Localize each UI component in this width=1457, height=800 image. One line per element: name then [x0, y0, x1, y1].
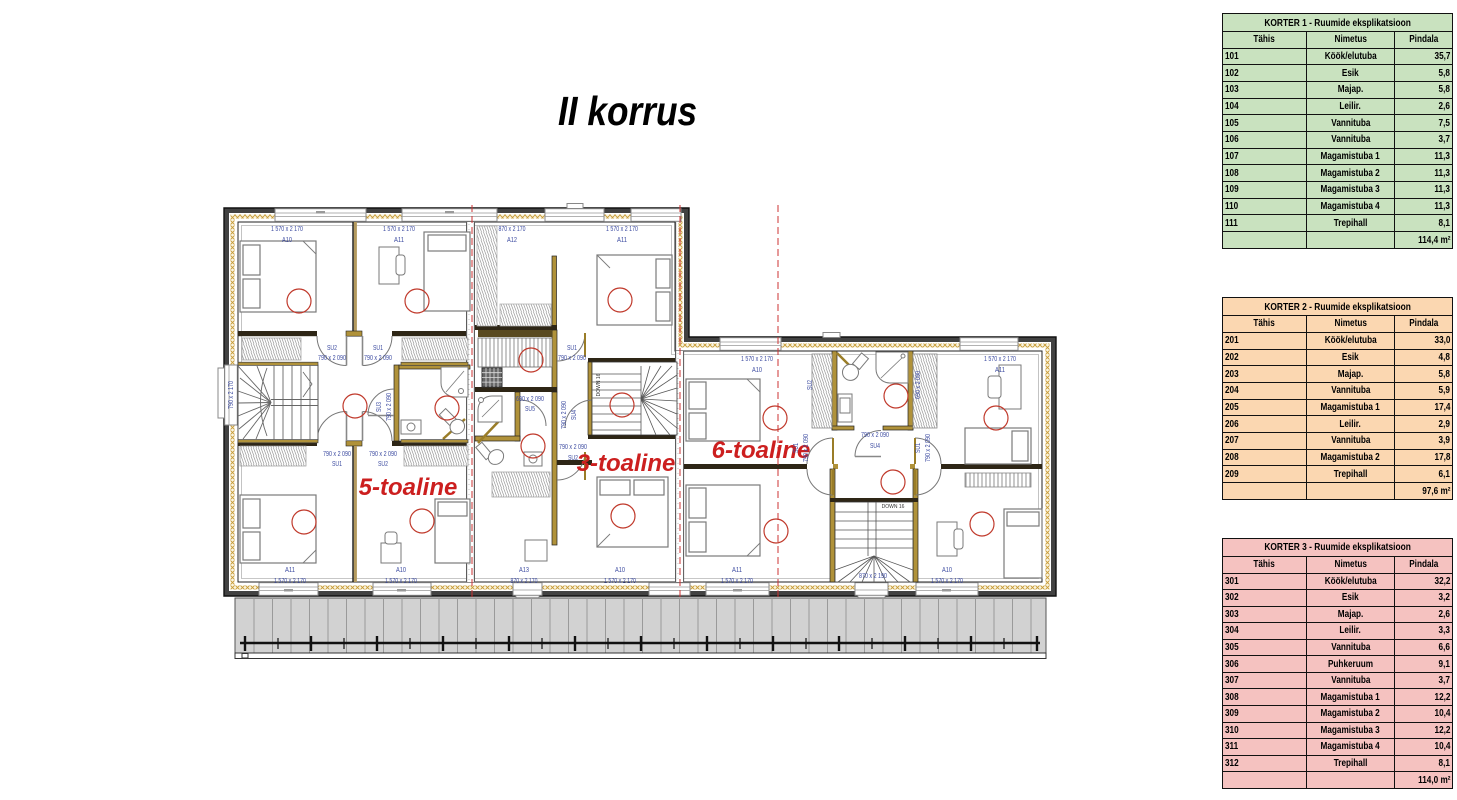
svg-text:790 x 2 170: 790 x 2 170 — [228, 381, 235, 409]
svg-text:790 x 2 090: 790 x 2 090 — [558, 355, 586, 362]
svg-text:SU2: SU2 — [327, 345, 337, 352]
svg-text:1 570 x 2 170: 1 570 x 2 170 — [385, 578, 417, 585]
svg-text:5-toaline: 5-toaline — [359, 474, 458, 501]
svg-text:SU1: SU1 — [373, 345, 383, 352]
svg-text:A11: A11 — [394, 237, 404, 244]
svg-text:A13: A13 — [519, 567, 529, 574]
svg-text:790 x 2 090: 790 x 2 090 — [559, 444, 587, 451]
svg-text:SU1: SU1 — [332, 461, 342, 468]
svg-text:SU1: SU1 — [567, 345, 577, 352]
svg-text:SU2: SU2 — [378, 461, 388, 468]
svg-text:790 x 2 090: 790 x 2 090 — [318, 355, 346, 362]
svg-text:690 x 2 090: 690 x 2 090 — [516, 396, 544, 403]
svg-text:DOWN 16: DOWN 16 — [596, 373, 602, 396]
svg-text:SU4: SU4 — [870, 443, 880, 450]
svg-text:A11: A11 — [285, 567, 295, 574]
svg-text:1 570 x 2 170: 1 570 x 2 170 — [604, 578, 636, 585]
svg-text:790 x 2 090: 790 x 2 090 — [925, 434, 932, 462]
svg-text:790 x 2 090: 790 x 2 090 — [803, 434, 810, 462]
svg-text:SU3: SU3 — [376, 402, 383, 412]
svg-text:SU2: SU2 — [568, 455, 578, 462]
svg-text:790 x 2 090: 790 x 2 090 — [861, 432, 889, 439]
svg-text:A11: A11 — [995, 367, 1005, 374]
svg-text:790 x 2 090: 790 x 2 090 — [369, 451, 397, 458]
svg-text:1 570 x 2 170: 1 570 x 2 170 — [741, 356, 773, 363]
svg-text:A11: A11 — [732, 567, 742, 574]
svg-text:SU1: SU1 — [793, 443, 800, 453]
svg-text:790 x 2 090: 790 x 2 090 — [364, 355, 392, 362]
svg-text:3-toaline: 3-toaline — [577, 450, 676, 477]
svg-text:SU1: SU1 — [915, 443, 922, 453]
svg-text:1 570 x 2 170: 1 570 x 2 170 — [931, 578, 963, 585]
svg-text:A10: A10 — [942, 567, 952, 574]
svg-text:A10: A10 — [752, 367, 762, 374]
svg-text:870 x 2 170: 870 x 2 170 — [499, 226, 526, 233]
svg-text:870 x 2 170: 870 x 2 170 — [511, 578, 538, 585]
svg-text:790 x 2 090: 790 x 2 090 — [561, 401, 568, 429]
svg-text:A10: A10 — [396, 567, 406, 574]
svg-text:A10: A10 — [282, 237, 292, 244]
svg-text:1 570 x 2 170: 1 570 x 2 170 — [383, 226, 415, 233]
svg-text:A11: A11 — [617, 237, 627, 244]
svg-text:790 x 2 090: 790 x 2 090 — [323, 451, 351, 458]
svg-text:790 x 2 090: 790 x 2 090 — [386, 393, 393, 421]
svg-text:1 570 x 2 170: 1 570 x 2 170 — [271, 226, 303, 233]
svg-text:690 x 2 090: 690 x 2 090 — [915, 371, 922, 399]
svg-text:DOWN 16: DOWN 16 — [882, 504, 905, 510]
svg-text:SU2: SU2 — [807, 380, 814, 390]
svg-text:1 570 x 2 170: 1 570 x 2 170 — [606, 226, 638, 233]
svg-text:1 570 x 2 170: 1 570 x 2 170 — [984, 356, 1016, 363]
svg-text:A12: A12 — [507, 237, 517, 244]
svg-text:SU5: SU5 — [525, 406, 535, 413]
svg-text:A10: A10 — [615, 567, 625, 574]
svg-text:870 x 2 190: 870 x 2 190 — [859, 573, 887, 580]
svg-text:1 570 x 2 170: 1 570 x 2 170 — [721, 578, 753, 585]
svg-text:SU4: SU4 — [571, 410, 578, 420]
svg-text:1 570 x 2 170: 1 570 x 2 170 — [274, 578, 306, 585]
